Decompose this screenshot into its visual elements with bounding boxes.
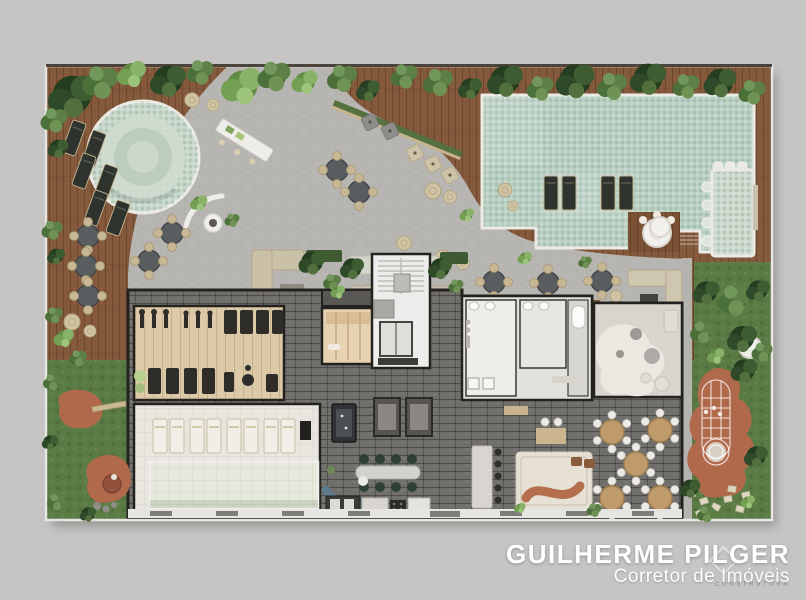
floorplan-render: D CONSTRUTORA GUILHERME PILGER Corretor …	[0, 0, 806, 600]
wood-table	[536, 428, 566, 444]
zen-garden-room	[594, 303, 682, 397]
lap-pool	[150, 462, 318, 508]
sauna-room	[322, 308, 374, 364]
deck-round-table	[650, 217, 670, 237]
lounge-rug	[516, 452, 595, 510]
buffet	[504, 406, 528, 415]
stair-landing	[394, 274, 410, 292]
agent-branding: GUILHERME PILGER Corretor de Imóveis	[506, 541, 790, 588]
shaft	[374, 300, 394, 318]
plunge-spa	[712, 170, 758, 256]
gym-room	[134, 306, 284, 400]
agent-name: GUILHERME PILGER	[506, 541, 790, 568]
floorplan-canvas	[0, 0, 806, 600]
vestibule	[322, 290, 374, 306]
billiards-table	[332, 404, 356, 442]
ball-lamp	[358, 476, 368, 486]
towel-cabinet	[300, 421, 311, 440]
threshold	[378, 358, 418, 365]
agent-title: Corretor de Imóveis	[506, 566, 790, 588]
stair-core	[372, 254, 430, 368]
restrooms	[462, 296, 592, 400]
kitchen-island	[472, 446, 492, 508]
indoor-pool-room	[134, 404, 320, 512]
fire-pit	[204, 214, 222, 232]
